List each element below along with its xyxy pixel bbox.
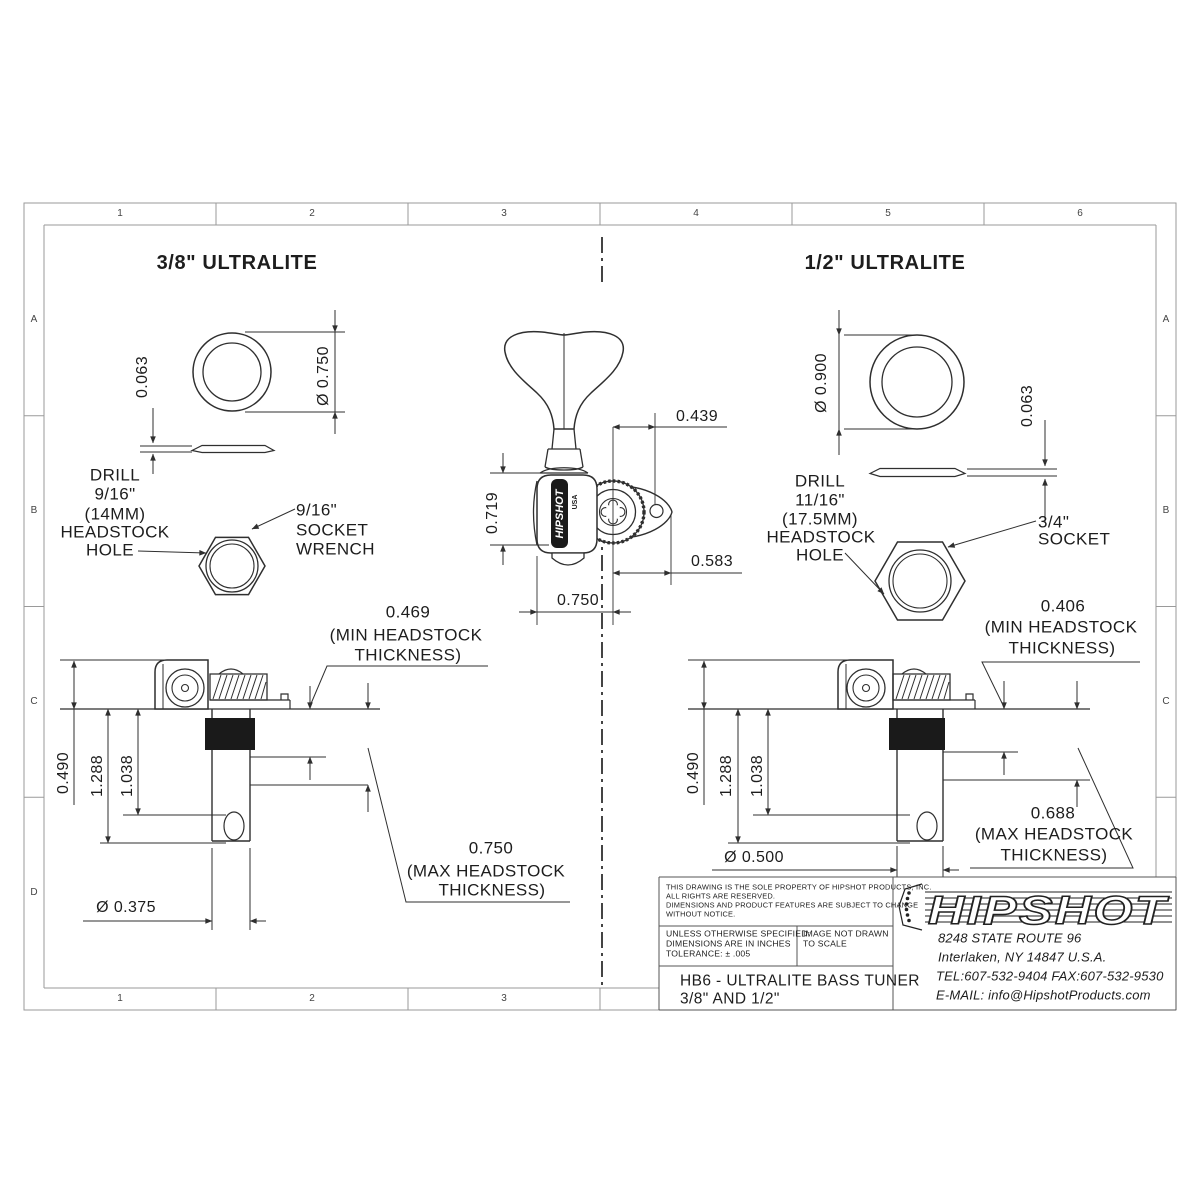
- right-washer-od-dim: Ø 0.900: [814, 353, 830, 413]
- tuner-body-usa-label: USA: [572, 495, 579, 510]
- grid-col-4-top: 4: [693, 209, 699, 219]
- scale-note-line2: TO SCALE: [803, 940, 847, 949]
- spec-note-line1: UNLESS OTHERWISE SPECIFIED:: [666, 930, 810, 939]
- left-min-thickness-line2: (MIN HEADSTOCK: [330, 627, 483, 644]
- scale-note-line1: IMAGE NOT DRAWN: [803, 930, 889, 939]
- right-section-title: 1/2" ULTRALITE: [805, 253, 966, 273]
- center-ear-offset-dim: 0.583: [691, 554, 733, 570]
- drawing-sheet: HIPSHOT USA HIPSHOT 1 2 3 4 5 6 1 2 3 A …: [0, 0, 1200, 1200]
- grid-col-5-top: 5: [885, 209, 891, 219]
- right-max-thickness-line3: THICKNESS): [1001, 847, 1108, 864]
- grid-col-1-top: 1: [117, 209, 123, 219]
- grid-row-d-left: D: [30, 888, 37, 898]
- address-line3: TEL:607-532-9404 FAX:607-532-9530: [936, 970, 1164, 983]
- right-socket-note-line2: SOCKET: [1038, 531, 1110, 548]
- grid-row-a-left: A: [31, 315, 38, 325]
- left-washer-side-view: [140, 408, 274, 474]
- left-section-title: 3/8" ULTRALITE: [157, 253, 318, 273]
- left-socket-note-line3: WRENCH: [296, 541, 375, 558]
- grid-col-2-bottom: 2: [309, 994, 315, 1004]
- left-drill-note-line4: HEADSTOCK: [60, 524, 169, 541]
- left-drill-note-line2: 9/16": [94, 486, 135, 503]
- address-line1: 8248 STATE ROUTE 96: [938, 932, 1081, 945]
- left-max-thickness-line2: (MAX HEADSTOCK: [407, 863, 565, 880]
- right-side-view: [688, 660, 1090, 841]
- right-height-dim: 0.490: [686, 752, 702, 794]
- grid-row-b-left: B: [31, 506, 38, 516]
- right-washer-side-view: [870, 420, 1057, 523]
- right-max-thickness-line2: (MAX HEADSTOCK: [975, 826, 1133, 843]
- left-socket-note-line2: SOCKET: [296, 522, 368, 539]
- left-washer-od-dim: Ø 0.750: [316, 346, 332, 406]
- left-drill-note-line5: HOLE: [86, 542, 134, 559]
- left-post-od-dim: Ø 0.375: [96, 900, 156, 916]
- left-height-dim: 0.490: [56, 752, 72, 794]
- address-line2: Interlaken, NY 14847 U.S.A.: [938, 951, 1106, 964]
- left-max-thickness-line3: THICKNESS): [439, 882, 546, 899]
- address-line4: E-MAIL: info@HipshotProducts.com: [936, 989, 1151, 1002]
- left-drill-note-line3: (14MM): [85, 506, 146, 523]
- tuner-body-brand-label: HIPSHOT: [554, 488, 566, 538]
- drawing-line-art: HIPSHOT USA HIPSHOT: [0, 0, 1200, 1200]
- right-socket-note-line1: 3/4": [1038, 514, 1069, 531]
- left-socket-note-line1: 9/16": [296, 502, 337, 519]
- right-drill-note-line2: 11/16": [795, 492, 845, 509]
- right-drill-note-line5: HOLE: [796, 547, 844, 564]
- grid-col-2-top: 2: [309, 209, 315, 219]
- left-min-thickness-line1: 0.469: [386, 604, 431, 621]
- right-drill-note-line3: (17.5MM): [782, 511, 858, 528]
- spec-note-line3: TOLERANCE: ± .005: [666, 950, 750, 959]
- grid-row-b-right: B: [1163, 506, 1170, 516]
- part-title-line1: HB6 - ULTRALITE BASS TUNER: [680, 973, 920, 989]
- right-max-thickness-line1: 0.688: [1031, 805, 1076, 822]
- part-title-line2: 3/8" AND 1/2": [680, 991, 780, 1007]
- center-front-view: [505, 332, 672, 565]
- left-to-hole-dim: 1.038: [120, 755, 136, 797]
- right-washer-thickness-dim: 0.063: [1020, 385, 1036, 427]
- right-min-thickness-line3: THICKNESS): [1009, 640, 1116, 657]
- left-max-thickness-line1: 0.750: [469, 840, 514, 857]
- center-width-dim: 0.750: [557, 593, 599, 609]
- right-length-dim: 1.288: [719, 755, 735, 797]
- grid-row-c-left: C: [30, 697, 37, 707]
- right-min-thickness-line1: 0.406: [1041, 598, 1086, 615]
- property-note-line4: WITHOUT NOTICE.: [666, 910, 735, 917]
- grid-col-6-top: 6: [1077, 209, 1083, 219]
- right-drill-note-line4: HEADSTOCK: [766, 529, 875, 546]
- property-note-line1: THIS DRAWING IS THE SOLE PROPERTY OF HIP…: [666, 883, 932, 890]
- right-post-od-dim: Ø 0.500: [724, 850, 784, 866]
- right-washer-front-view: [839, 310, 964, 455]
- left-min-thickness-line3: THICKNESS): [355, 647, 462, 664]
- grid-col-3-bottom: 3: [501, 994, 507, 1004]
- right-to-hole-dim: 1.038: [750, 755, 766, 797]
- grid-row-a-right: A: [1163, 315, 1170, 325]
- property-note-line3: DIMENSIONS AND PRODUCT FEATURES ARE SUBJ…: [666, 901, 918, 908]
- spec-note-line2: DIMENSIONS ARE IN INCHES: [666, 940, 791, 949]
- right-drill-note-line1: DRILL: [795, 473, 845, 490]
- grid-row-c-right: C: [1162, 697, 1169, 707]
- right-min-thickness-line2: (MIN HEADSTOCK: [985, 619, 1138, 636]
- hipshot-logo: HIPSHOT: [899, 884, 1172, 933]
- center-key-offset-dim: 0.439: [676, 409, 718, 425]
- property-note-line2: ALL RIGHTS ARE RESERVED.: [666, 892, 775, 899]
- left-washer-thickness-dim: 0.063: [135, 356, 151, 398]
- hipshot-logo-text: HIPSHOT: [928, 889, 1170, 933]
- left-length-dim: 1.288: [90, 755, 106, 797]
- grid-col-1-bottom: 1: [117, 994, 123, 1004]
- grid-col-3-top: 3: [501, 209, 507, 219]
- left-drill-note-line1: DRILL: [90, 467, 140, 484]
- center-body-height-dim: 0.719: [485, 492, 501, 534]
